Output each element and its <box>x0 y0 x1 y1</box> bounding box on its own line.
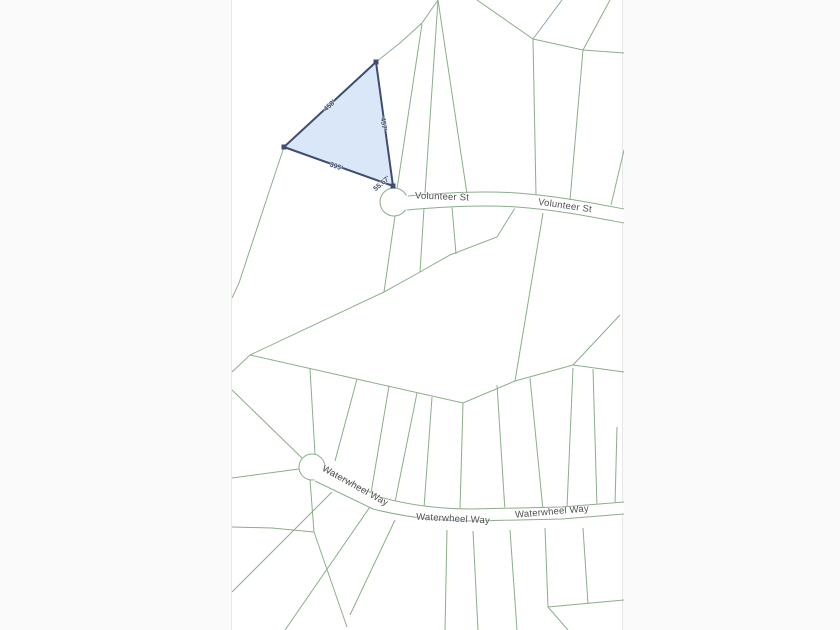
parcel-map-canvas[interactable]: Volunteer St Volunteer St Waterwheel Way… <box>231 0 623 630</box>
map-vector-layer <box>232 0 624 630</box>
parcel-boundary-lines <box>232 0 624 630</box>
selected-parcel[interactable] <box>282 60 396 189</box>
gis-map-view: Volunteer St Volunteer St Waterwheel Way… <box>0 0 840 630</box>
